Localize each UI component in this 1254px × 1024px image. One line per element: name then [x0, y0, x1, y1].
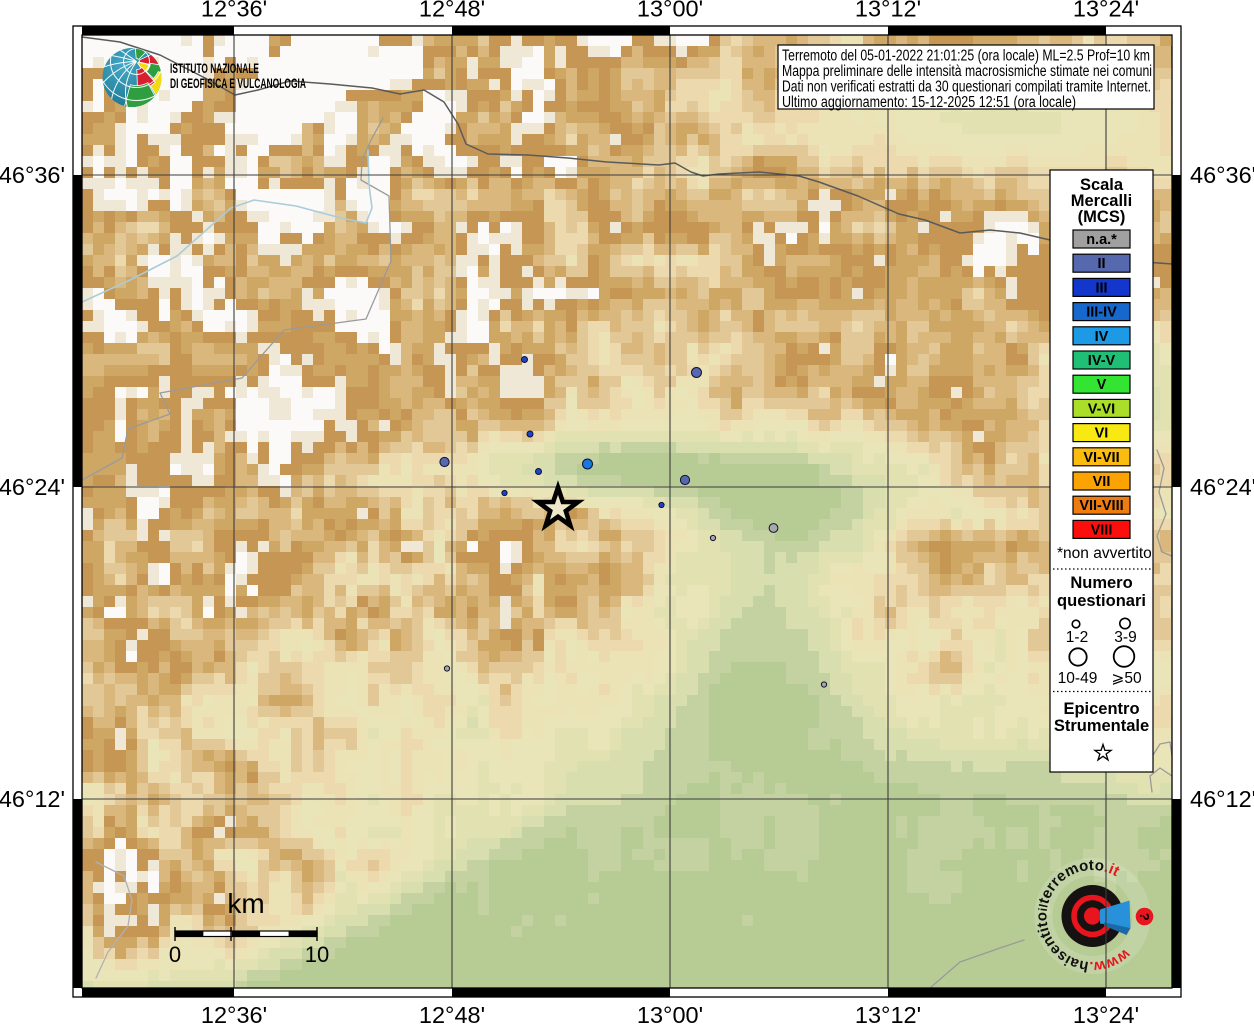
svg-text:Numero: Numero — [1070, 574, 1132, 592]
svg-text:13°24': 13°24' — [1073, 1002, 1139, 1024]
svg-text:III-IV: III-IV — [1086, 305, 1117, 321]
svg-text:46°24': 46°24' — [1190, 474, 1254, 500]
svg-text:10: 10 — [305, 942, 329, 967]
svg-text:V: V — [1097, 377, 1107, 393]
svg-text:1-2: 1-2 — [1066, 629, 1088, 646]
svg-text:(MCS): (MCS) — [1078, 208, 1126, 226]
svg-text:III: III — [1095, 280, 1107, 296]
svg-text:46°36': 46°36' — [1190, 162, 1254, 188]
svg-text:46°36': 46°36' — [0, 162, 65, 188]
svg-text:⩾50: ⩾50 — [1111, 670, 1142, 687]
svg-text:0: 0 — [169, 942, 181, 967]
svg-text:VII-VIII: VII-VIII — [1079, 498, 1123, 514]
svg-text:IV: IV — [1095, 329, 1109, 345]
svg-text:*non avvertito: *non avvertito — [1057, 545, 1152, 562]
svg-text:12°36': 12°36' — [201, 0, 267, 22]
svg-text:Epicentro: Epicentro — [1063, 700, 1139, 718]
svg-text:46°12': 46°12' — [1190, 786, 1254, 812]
svg-text:3-9: 3-9 — [1114, 629, 1136, 646]
svg-text:Terremoto del 05-01-2022 21:01: Terremoto del 05-01-2022 21:01:25 (ora l… — [782, 48, 1150, 65]
svg-text:13°12': 13°12' — [855, 0, 921, 22]
svg-text:13°12': 13°12' — [855, 1002, 921, 1024]
svg-text:13°24': 13°24' — [1073, 0, 1139, 22]
svg-text:12°36': 12°36' — [201, 1002, 267, 1024]
svg-text:Dati non verificati estratti d: Dati non verificati estratti da 30 quest… — [782, 79, 1151, 96]
svg-text:13°00': 13°00' — [637, 0, 703, 22]
svg-text:12°48': 12°48' — [419, 0, 485, 22]
svg-text:VI-VII: VI-VII — [1083, 450, 1119, 466]
svg-text:V-VI: V-VI — [1088, 401, 1115, 417]
svg-text:km: km — [227, 888, 264, 919]
svg-text:IV-V: IV-V — [1088, 353, 1116, 369]
svg-text:10-49: 10-49 — [1058, 670, 1098, 687]
svg-text:13°00': 13°00' — [637, 1002, 703, 1024]
svg-text:Ultimo aggiornamento: 15-12-20: Ultimo aggiornamento: 15-12-2025 12:51 (… — [782, 94, 1076, 111]
svg-text:12°48': 12°48' — [419, 1002, 485, 1024]
svg-text:n.a.*: n.a.* — [1086, 232, 1117, 248]
svg-text:II: II — [1097, 256, 1105, 272]
svg-text:DI GEOFISICA E VULCANOLOGIA: DI GEOFISICA E VULCANOLOGIA — [170, 76, 306, 91]
svg-text:46°12': 46°12' — [0, 786, 65, 812]
svg-text:ISTITUTO NAZIONALE: ISTITUTO NAZIONALE — [170, 61, 259, 76]
svg-text:VII: VII — [1093, 474, 1111, 490]
svg-text:questionari: questionari — [1057, 592, 1146, 610]
svg-text:VIII: VIII — [1091, 522, 1113, 538]
svg-text:VI: VI — [1095, 426, 1109, 442]
svg-text:Strumentale: Strumentale — [1054, 717, 1149, 735]
svg-text:46°24': 46°24' — [0, 474, 65, 500]
svg-text:Mappa preliminare delle intens: Mappa preliminare delle intensità macros… — [782, 63, 1152, 80]
